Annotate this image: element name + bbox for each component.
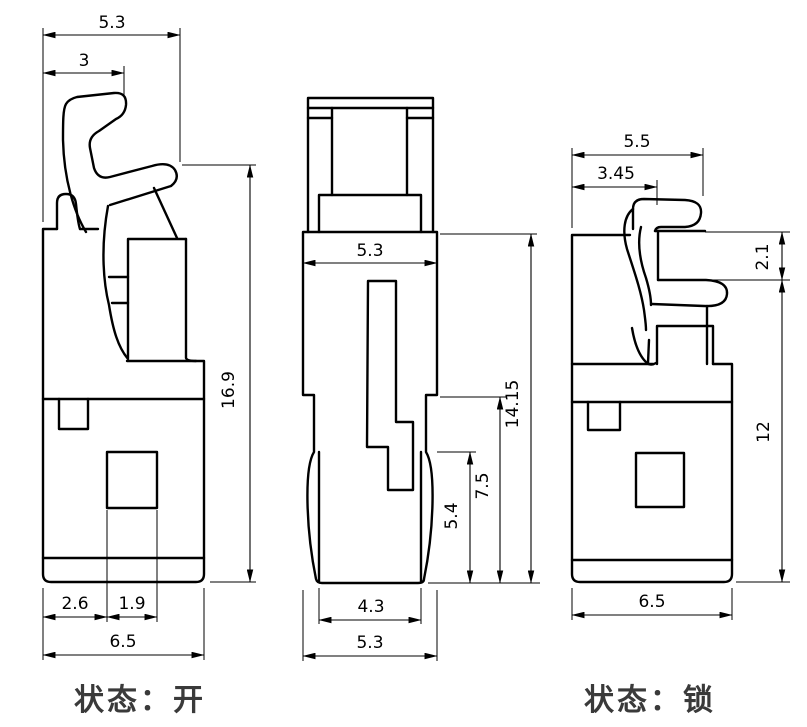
dim-text-overall-width: 5.5 — [623, 132, 650, 152]
left-catch-post — [128, 239, 186, 358]
right-barb-sliver — [632, 328, 656, 365]
dim-text-bottom-width: 5.3 — [356, 633, 383, 653]
right-body-outline — [572, 235, 732, 582]
dim-text-lower-height: 7.5 — [473, 472, 493, 499]
dim-text-hook-gap: 2.1 — [753, 243, 773, 270]
left-window — [107, 452, 157, 508]
right-hook-jaw — [652, 280, 727, 306]
dim-text-wing-height: 5.4 — [442, 502, 462, 529]
dim-text-tip-width: 4.3 — [357, 597, 384, 617]
right-latch-knob — [633, 199, 701, 231]
dim-text-latch-tip: 3 — [79, 51, 90, 71]
front-view: 5.3 5.4 7.5 14.15 4.3 5.3 — [303, 98, 540, 661]
right-top-notch — [588, 402, 620, 430]
left-strut-edge — [154, 188, 177, 238]
dim-text-body-height: 12 — [754, 421, 774, 443]
dim-text-body-width: 6.5 — [109, 632, 136, 652]
dim-text-body-width: 6.5 — [638, 592, 665, 612]
left-catch-post-right — [186, 239, 196, 361]
left-front-curve — [103, 206, 128, 359]
dim-text-overall-height: 16.9 — [219, 371, 239, 409]
front-slot — [367, 281, 413, 490]
left-top-notch — [59, 399, 88, 429]
right-window — [636, 453, 684, 507]
dim-text-body-width: 5.3 — [356, 241, 383, 261]
left-body-outline — [43, 229, 204, 582]
right-catch-block — [657, 326, 713, 364]
left-view-open: 5.3 3 16.9 2.6 1.9 6.5 — [43, 13, 256, 660]
drawing-page: 5.3 3 16.9 2.6 1.9 6.5 5.3 5.4 — [0, 0, 807, 727]
dim-text-edge-to-window: 2.6 — [61, 594, 88, 614]
right-view-locked: 5.5 3.45 2.1 12 6.5 — [572, 132, 790, 620]
dim-text-latch-width: 3.45 — [597, 164, 635, 184]
left-latch-arm-open — [63, 93, 177, 232]
state-label-open: 状态：开 — [74, 683, 206, 718]
front-body-outline — [303, 232, 437, 583]
front-shoulder-block — [319, 195, 421, 232]
right-barb-chord — [648, 340, 649, 363]
dim-text-overall-height: 14.15 — [503, 380, 523, 429]
dim-text-window-width: 1.9 — [118, 594, 145, 614]
dim-text-overall-width: 5.3 — [98, 13, 125, 33]
drawing-canvas: 5.3 3 16.9 2.6 1.9 6.5 5.3 5.4 — [0, 0, 807, 727]
state-label-locked: 状态：锁 — [584, 683, 716, 718]
